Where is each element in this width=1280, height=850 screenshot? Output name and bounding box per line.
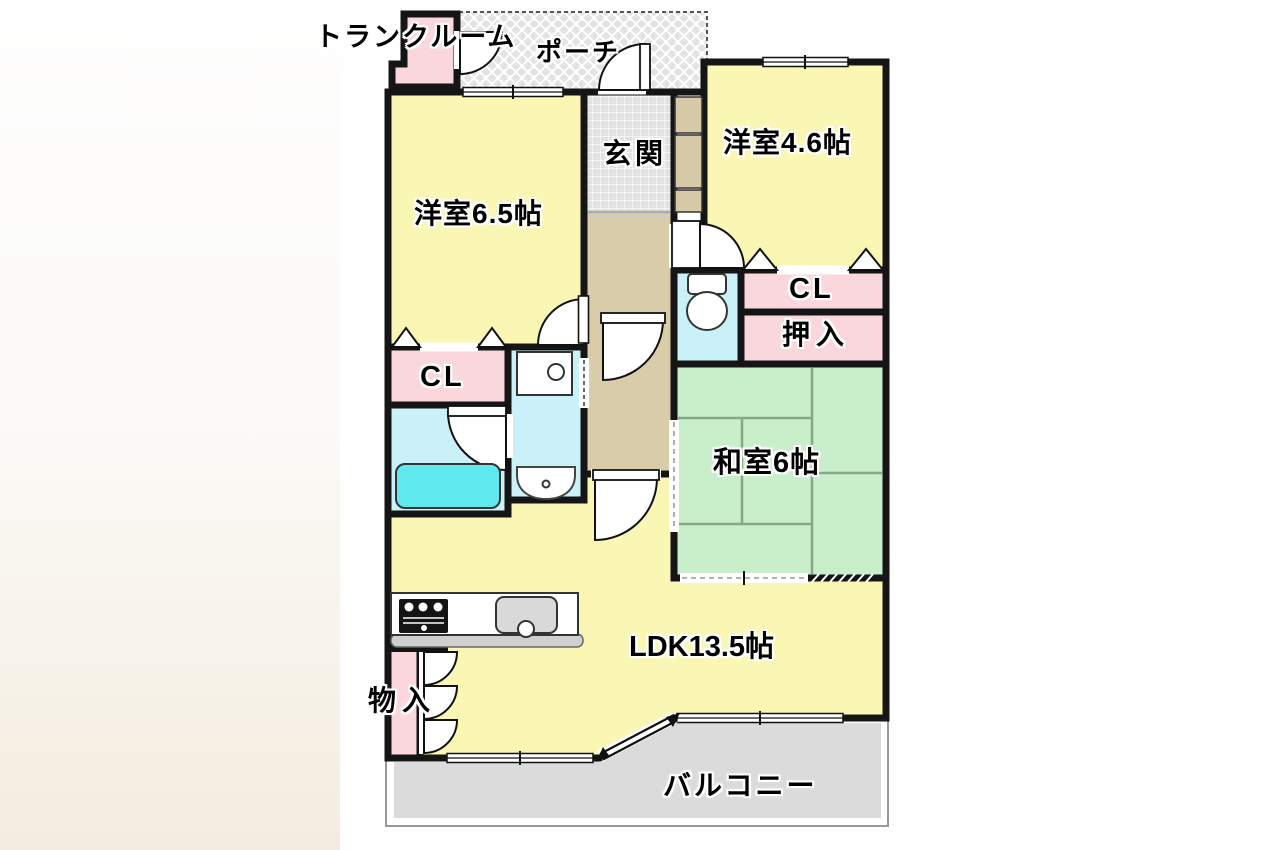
label-ldk: LDK13.5帖 [629, 633, 774, 662]
window-bedroom-46 [763, 55, 848, 69]
label-western-room-46: 洋室4.6帖 [723, 129, 852, 157]
label-western-room-65: 洋室6.5帖 [414, 200, 543, 228]
window-ldk-left [447, 751, 593, 765]
label-balcony: バルコニー [663, 772, 817, 800]
stove-icon [399, 599, 448, 633]
kitchen-counter [391, 593, 583, 647]
bathtub-icon [396, 464, 500, 508]
door-leaf-bedroom46 [672, 221, 700, 268]
label-storage: 物入 [368, 687, 436, 715]
label-porch: ポーチ [536, 39, 620, 65]
door-leaf-entrance [640, 44, 650, 90]
label-entrance: 玄関 [603, 140, 667, 168]
label-oshiire: 押入 [782, 321, 850, 349]
washing-machine-icon [517, 352, 572, 395]
floor-plan-page: トランクルーム ポーチ 玄関 洋室4.6帖 洋室6.5帖 CL 押入 CL 和室… [0, 0, 1280, 850]
kitchen-sink-icon [496, 597, 557, 637]
label-japanese-room: 和室6帖 [713, 449, 820, 478]
washbasin-icon [517, 467, 575, 499]
toilet-icon [687, 274, 727, 330]
label-trunk-room: トランクルーム [315, 24, 516, 51]
shoe-cabinet-icon [675, 97, 702, 212]
label-closet-left: CL [420, 363, 465, 392]
label-closet-upper: CL [789, 275, 834, 304]
window-ldk-right [677, 711, 843, 725]
floor-plan-drawing [0, 0, 1280, 850]
window-bedroom-65 [463, 85, 563, 99]
washroom-accordion-door [579, 358, 589, 408]
